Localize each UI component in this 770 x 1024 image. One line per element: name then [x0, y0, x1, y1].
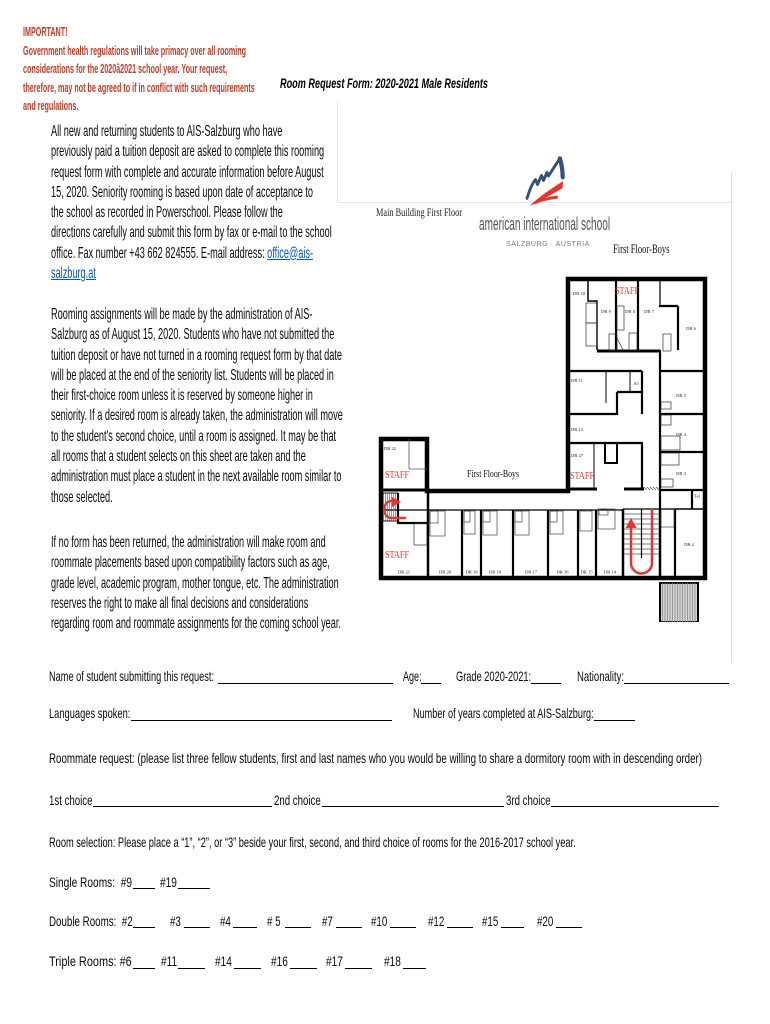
svg-text:DR 22: DR 22 — [384, 446, 397, 451]
svg-text:DR 15: DR 15 — [580, 570, 593, 575]
svg-text:DR 9: DR 9 — [601, 309, 612, 314]
svg-text:STAFF: STAFF — [570, 470, 595, 482]
svg-text:DR 10: DR 10 — [573, 291, 586, 296]
svg-text:STAFF: STAFF — [385, 549, 410, 561]
svg-text:DR 5: DR 5 — [676, 393, 687, 398]
svg-text:DR 17: DR 17 — [525, 570, 538, 575]
svg-text:DR 14: DR 14 — [604, 570, 617, 575]
svg-text:STAFF: STAFF — [385, 469, 410, 481]
svg-text:DR 8: DR 8 — [625, 309, 636, 314]
svg-text:DR 3: DR 3 — [676, 471, 687, 476]
svg-text:DR 27: DR 27 — [571, 453, 584, 458]
svg-text:Tel: Tel — [694, 494, 701, 499]
svg-text:DR 21: DR 21 — [398, 570, 411, 575]
svg-text:A5: A5 — [633, 381, 639, 386]
svg-text:DR 20: DR 20 — [439, 570, 452, 575]
svg-text:DR 2: DR 2 — [684, 542, 695, 547]
svg-text:DR 19: DR 19 — [465, 570, 478, 575]
svg-text:DR 6: DR 6 — [686, 326, 697, 331]
svg-text:DR 7: DR 7 — [644, 309, 655, 314]
svg-text:DR 11: DR 11 — [571, 378, 584, 383]
svg-text:First Floor-Boys: First Floor-Boys — [467, 469, 519, 480]
svg-text:DR 16: DR 16 — [556, 570, 569, 575]
svg-text:DR 18: DR 18 — [489, 570, 502, 575]
svg-text:STAFF: STAFF — [615, 285, 640, 297]
svg-text:DR 4: DR 4 — [676, 432, 687, 437]
svg-text:DR 12: DR 12 — [571, 427, 584, 432]
